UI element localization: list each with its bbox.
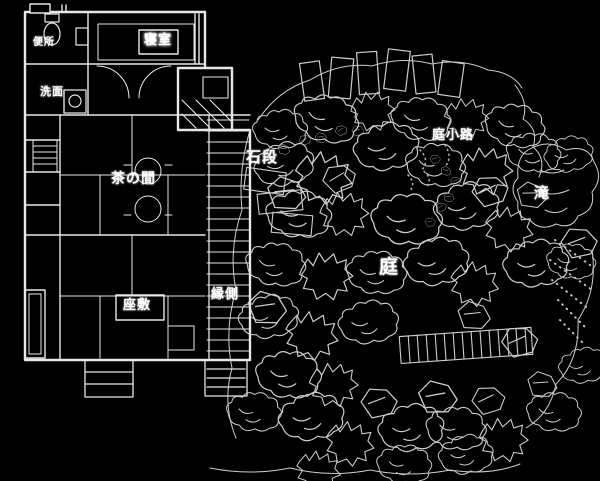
speckle-texture [408, 145, 449, 191]
zashiki-tatami [60, 235, 205, 358]
label-garden: 庭 [379, 258, 399, 277]
door-arcs [97, 66, 171, 98]
sink-fixture [64, 90, 86, 113]
porch-steps [85, 360, 247, 397]
label-bedroom: 寝室 [144, 34, 172, 47]
label-waterfall: 滝 [534, 186, 550, 201]
garden-boundary [210, 60, 593, 474]
stairs-hatch [33, 140, 57, 172]
house-plan [25, 4, 250, 397]
garden-plan [210, 49, 600, 481]
bridge-slats [399, 327, 533, 363]
label-washroom: 洗面 [40, 86, 64, 97]
label-engawa: 縁側 [211, 288, 239, 301]
label-garden-path: 庭小路 [432, 129, 474, 142]
tree-scrubs [224, 87, 600, 481]
label-zashiki: 座敷 [123, 299, 151, 312]
fence-slabs [299, 49, 464, 101]
label-stone-steps: 石段 [246, 150, 278, 165]
site-plan-canvas: 便所 洗面 寝室 茶の間 座敷 縁側 石段 庭小路 庭 滝 [0, 0, 600, 481]
engawa-planks [207, 115, 249, 360]
hand-drawn-plan [0, 0, 600, 481]
label-tea-room: 茶の間 [111, 172, 156, 186]
label-toilet: 便所 [33, 38, 55, 48]
